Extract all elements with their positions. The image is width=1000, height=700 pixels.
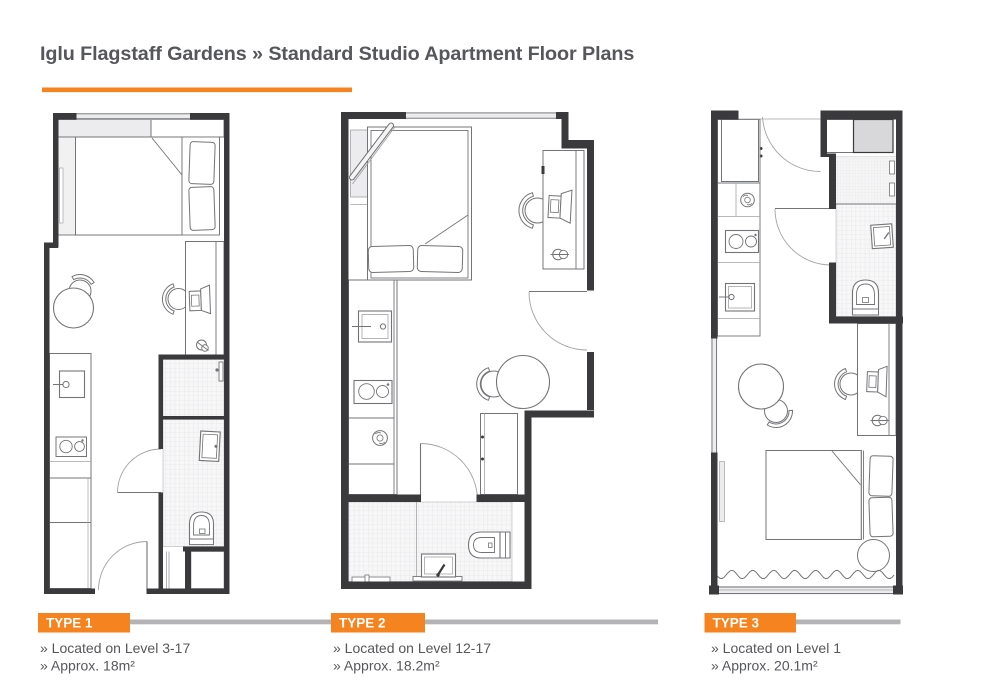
svg-text:» Approx. 18m²: » Approx. 18m² <box>40 658 135 674</box>
svg-text:Iglu Flagstaff Gardens » Stand: Iglu Flagstaff Gardens » Standard Studio… <box>40 43 634 65</box>
svg-text:TYPE 3: TYPE 3 <box>713 616 760 631</box>
svg-text:» Located on Level 12-17: » Located on Level 12-17 <box>333 640 491 656</box>
svg-text:TYPE 2: TYPE 2 <box>339 616 386 631</box>
svg-text:» Located on Level 3-17: » Located on Level 3-17 <box>40 640 190 656</box>
svg-text:» Located on Level 1: » Located on Level 1 <box>711 640 841 656</box>
svg-text:» Approx. 18.2m²: » Approx. 18.2m² <box>333 658 440 674</box>
svg-text:» Approx. 20.1m²: » Approx. 20.1m² <box>711 658 818 674</box>
svg-text:TYPE 1: TYPE 1 <box>46 616 93 631</box>
